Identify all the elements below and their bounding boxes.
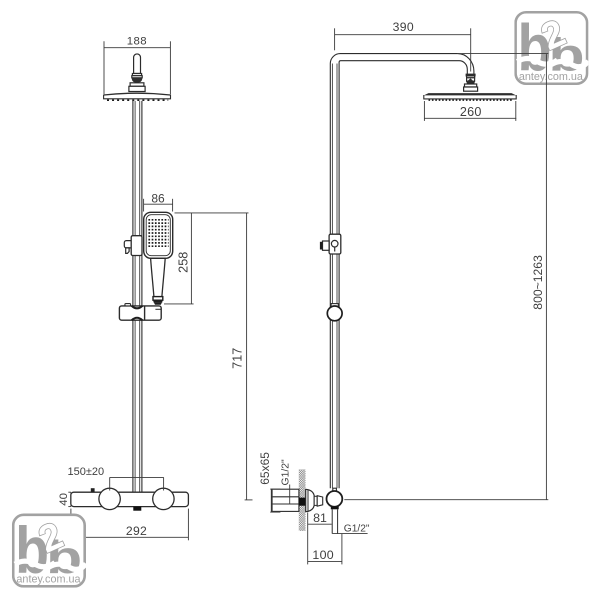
svg-text:188: 188 [127,36,147,48]
svg-text:40: 40 [58,493,70,506]
svg-text:292: 292 [126,524,147,538]
svg-text:390: 390 [393,20,414,34]
svg-text:717: 717 [231,348,245,369]
svg-text:260: 260 [460,105,482,119]
svg-text:81: 81 [313,511,327,525]
svg-text:G1/2": G1/2" [281,459,292,486]
svg-text:65x65: 65x65 [258,452,272,485]
svg-text:G1/2": G1/2" [344,524,370,535]
svg-text:150±20: 150±20 [67,466,104,478]
svg-text:100: 100 [312,548,334,562]
svg-text:86: 86 [151,191,165,205]
svg-text:800~1263: 800~1263 [531,255,545,310]
svg-text:258: 258 [177,252,191,273]
